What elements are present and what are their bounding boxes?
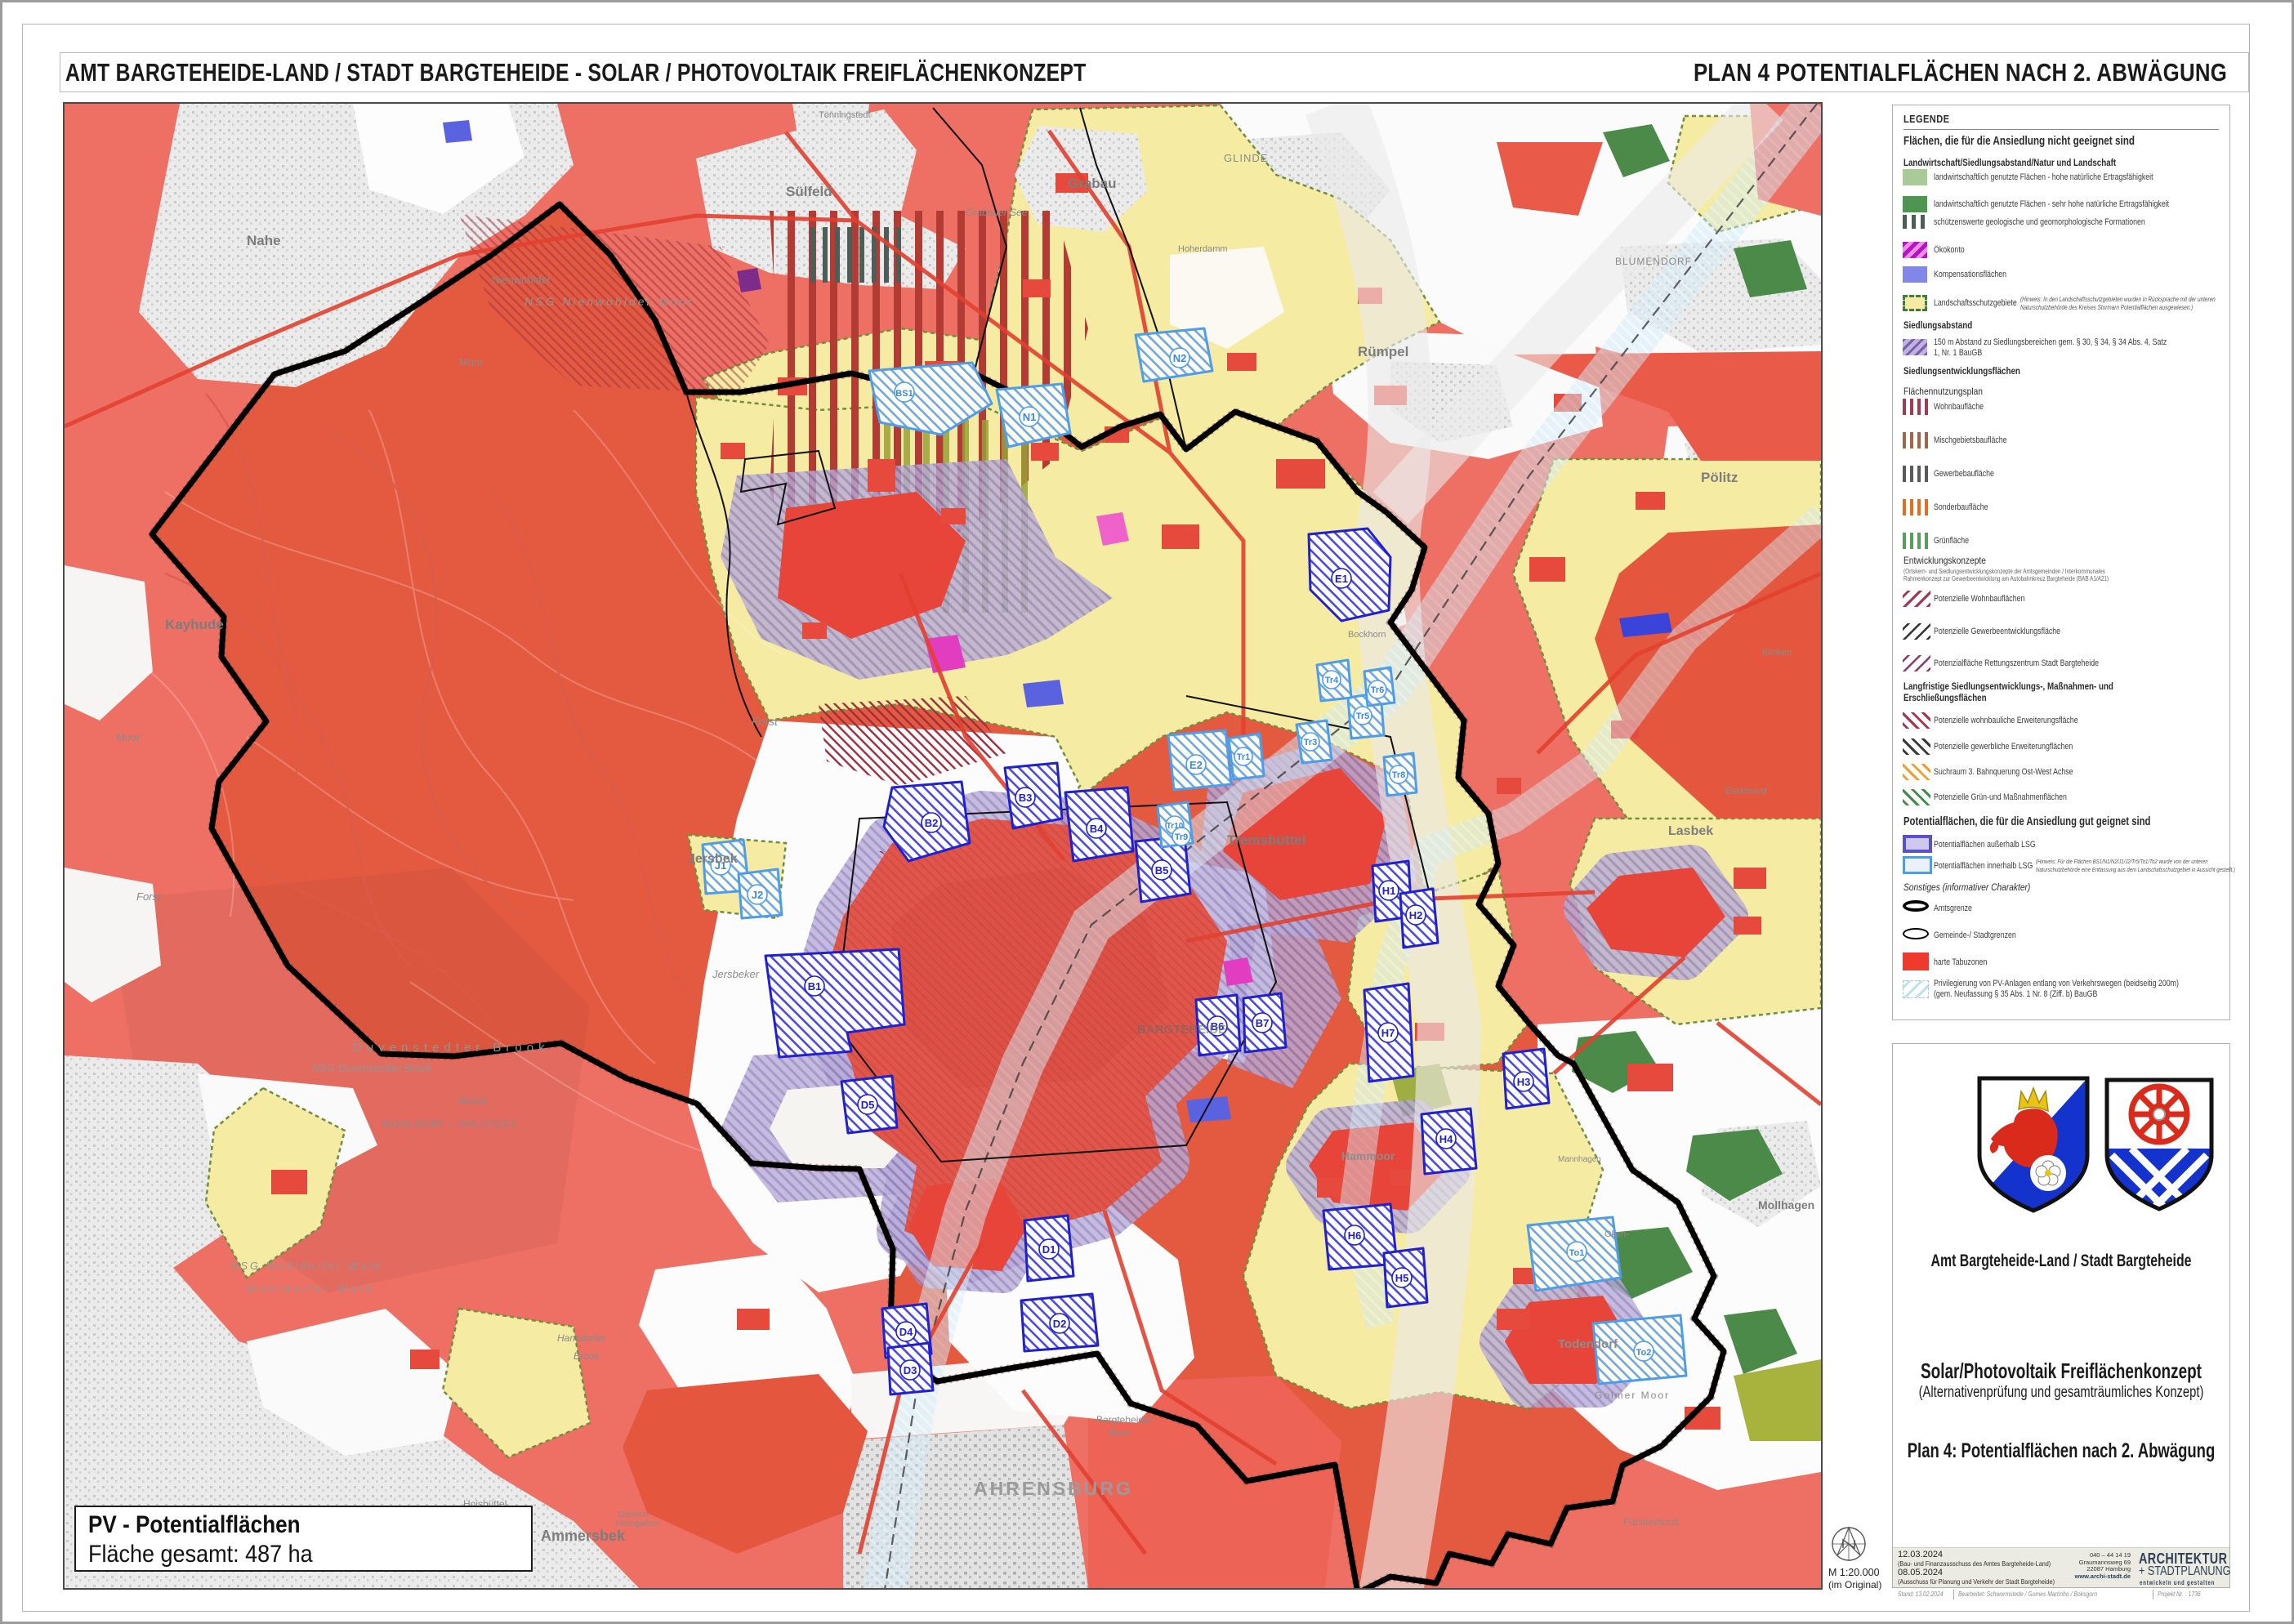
svg-text:Pölitz: Pölitz (1701, 470, 1738, 485)
svg-text:H5: H5 (1395, 1272, 1409, 1284)
svg-text:D3: D3 (904, 1364, 917, 1376)
svg-text:NSG Wohldorfer Wald: NSG Wohldorfer Wald (230, 1260, 382, 1272)
svg-text:Nienwohlder: Nienwohlder (492, 274, 551, 286)
svg-text:Tr5: Tr5 (1356, 712, 1370, 721)
svg-text:Moor: Moor (459, 356, 484, 368)
svg-text:Lasbek: Lasbek (1668, 824, 1713, 838)
svg-text:To2: To2 (1636, 1348, 1652, 1358)
svg-text:Tr9: Tr9 (1175, 832, 1189, 842)
svg-text:Klinken: Klinken (1762, 648, 1792, 658)
svg-text:Tr1: Tr1 (1237, 752, 1251, 762)
svg-text:BS1: BS1 (895, 389, 913, 399)
svg-text:Grabau: Grabau (1068, 176, 1117, 191)
svg-text:Daheim/: Daheim/ (618, 1510, 649, 1519)
svg-text:Tr4: Tr4 (1325, 676, 1339, 685)
svg-text:E2: E2 (1189, 759, 1203, 771)
svg-text:Todendorf: Todendorf (1558, 1337, 1618, 1351)
svg-text:BLUMENDORF: BLUMENDORF (1615, 256, 1692, 267)
svg-text:Duvenstedter Brook: Duvenstedter Brook (353, 1041, 550, 1055)
svg-text:B1: B1 (808, 980, 822, 993)
svg-text:Tr6: Tr6 (1371, 685, 1385, 695)
svg-text:Bockhorn: Bockhorn (1348, 630, 1386, 640)
svg-text:D1: D1 (1042, 1243, 1056, 1256)
svg-text:Nahe: Nahe (247, 233, 281, 248)
svg-text:WOHLDORF – OHLSTEDT: WOHLDORF – OHLSTEDT (382, 1118, 517, 1130)
svg-text:B3: B3 (1019, 792, 1033, 804)
svg-text:Tönningstedt: Tönningstedt (819, 110, 871, 120)
svg-text:Rümpel: Rümpel (1358, 344, 1408, 359)
svg-text:Kayhude: Kayhude (165, 617, 224, 632)
svg-text:Forst: Forst (752, 715, 779, 728)
svg-text:Tr10: Tr10 (1167, 822, 1184, 831)
svg-text:B7: B7 (1256, 1017, 1270, 1029)
svg-text:BARGTEHEIDE: BARGTEHEIDE (1137, 1023, 1226, 1037)
svg-text:J2: J2 (752, 889, 763, 901)
svg-text:Mannhagen: Mannhagen (1558, 1155, 1601, 1164)
svg-text:NSG Nienwohlder Moor: NSG Nienwohlder Moor (524, 295, 694, 308)
svg-text:B4: B4 (1090, 823, 1104, 835)
svg-text:Fürstenhorst: Fürstenhorst (1623, 1516, 1679, 1528)
svg-text:Ammersbek: Ammersbek (541, 1528, 626, 1544)
svg-text:Mollhagen: Mollhagen (1758, 1198, 1814, 1211)
svg-text:To1: To1 (1569, 1248, 1585, 1258)
svg-text:H6: H6 (1348, 1229, 1362, 1242)
svg-text:AHRENSBURG: AHRENSBURG (974, 1478, 1133, 1499)
svg-text:H4: H4 (1439, 1133, 1453, 1145)
svg-text:Tr8: Tr8 (1392, 770, 1406, 780)
svg-text:Tremsbüttel: Tremsbüttel (1227, 832, 1305, 848)
svg-text:N2: N2 (1173, 352, 1187, 364)
svg-text:B5: B5 (1155, 864, 1169, 877)
svg-text:Wohldorfer Wald: Wohldorfer Wald (247, 1283, 374, 1295)
svg-text:Sülfeld: Sülfeld (786, 184, 832, 199)
svg-text:H1: H1 (1382, 885, 1396, 897)
svg-text:D5: D5 (861, 1099, 875, 1111)
svg-text:GLINDE: GLINDE (1224, 152, 1268, 164)
svg-text:N1: N1 (1023, 411, 1037, 423)
svg-text:H2: H2 (1409, 909, 1423, 921)
svg-text:D4: D4 (899, 1326, 913, 1338)
svg-text:B2: B2 (925, 817, 939, 829)
svg-text:Hoherdamm: Hoherdamm (1178, 244, 1228, 254)
svg-text:Forst: Forst (136, 890, 162, 903)
svg-text:Tr3: Tr3 (1304, 738, 1318, 747)
svg-text:Hansdorfer: Hansdorfer (557, 1332, 606, 1344)
svg-text:Brook: Brook (459, 1095, 488, 1107)
svg-text:Jersbek: Jersbek (688, 852, 738, 866)
svg-text:Oken-: Oken- (1604, 1229, 1629, 1239)
svg-text:Barkhorst: Barkhorst (1725, 785, 1768, 796)
svg-text:E1: E1 (1335, 573, 1348, 585)
svg-text:Grabauer See: Grabauer See (966, 207, 1028, 218)
svg-text:H3: H3 (1517, 1076, 1531, 1088)
svg-text:Brook: Brook (573, 1350, 600, 1362)
svg-text:Bargteheider: Bargteheider (1096, 1414, 1153, 1425)
svg-text:Moor: Moor (116, 731, 141, 743)
svg-text:D2: D2 (1053, 1318, 1067, 1330)
svg-text:Hammoor: Hammoor (1341, 1149, 1395, 1162)
svg-text:Heimgarten: Heimgarten (616, 1519, 658, 1528)
svg-text:Golmer Moor: Golmer Moor (1595, 1390, 1670, 1401)
svg-text:H7: H7 (1381, 1027, 1395, 1039)
svg-text:Moor: Moor (1109, 1427, 1131, 1439)
svg-text:Jersbeker: Jersbeker (712, 968, 760, 980)
svg-text:NSG Duvenstedter Brook: NSG Duvenstedter Brook (312, 1062, 433, 1074)
